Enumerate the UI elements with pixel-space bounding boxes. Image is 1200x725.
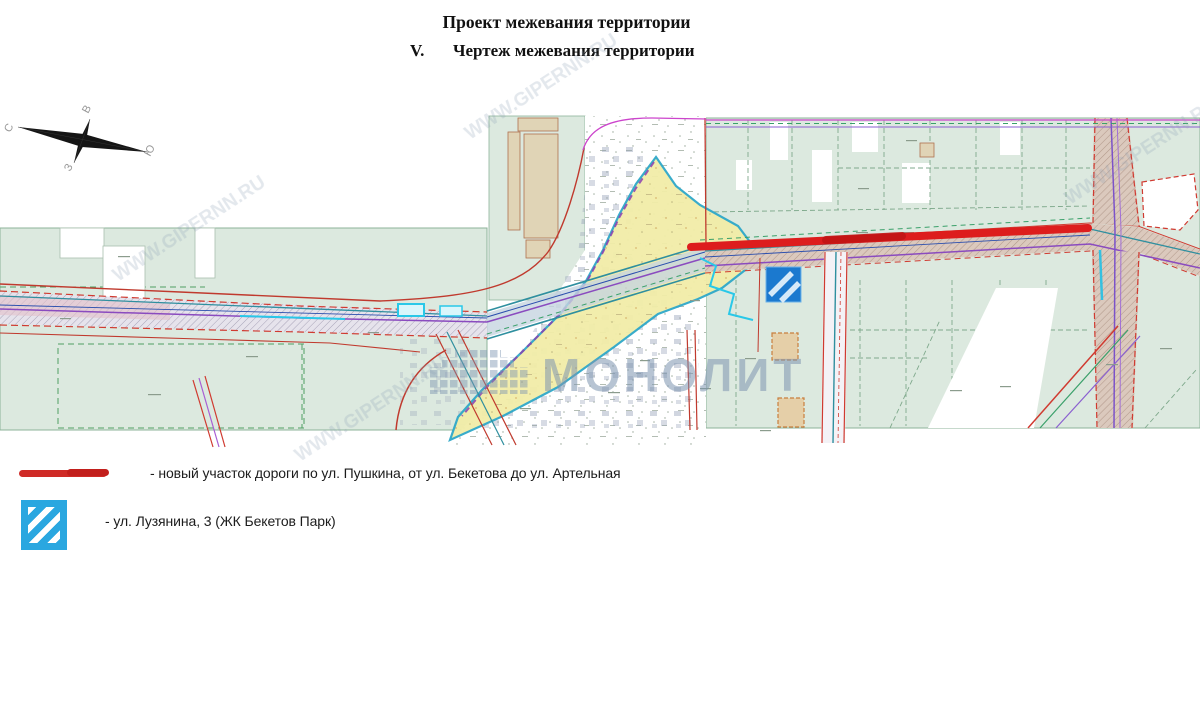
compass-east-label: В — [80, 103, 94, 115]
luzyanina-site-marker — [766, 267, 801, 302]
legend-red-line-symbol — [19, 470, 107, 477]
survey-map: МОНОЛИТ WWW.GIPERNN.RU WWW.GIPERNN.RU WW… — [0, 0, 1200, 460]
road-vertical-mid — [821, 252, 848, 443]
compass-south-label: Ю — [142, 143, 158, 158]
compass-rose: С В Ю З — [2, 103, 158, 173]
compass-west-label: З — [62, 162, 76, 174]
compass-north-label: С — [2, 122, 16, 135]
monolit-watermark: МОНОЛИТ — [430, 349, 805, 401]
plan-sheet: Проект межевания территории V. Чертеж ме… — [0, 0, 1200, 725]
monolit-watermark-text: МОНОЛИТ — [542, 349, 805, 401]
legend-new-road-label: - новый участок дороги по ул. Пушкина, о… — [150, 465, 621, 481]
legend-blue-square-symbol — [21, 500, 67, 550]
legend-luzyanina-label: - ул. Лузянина, 3 (ЖК Бекетов Парк) — [105, 513, 336, 529]
legend: - новый участок дороги по ул. Пушкина, о… — [0, 460, 1200, 580]
